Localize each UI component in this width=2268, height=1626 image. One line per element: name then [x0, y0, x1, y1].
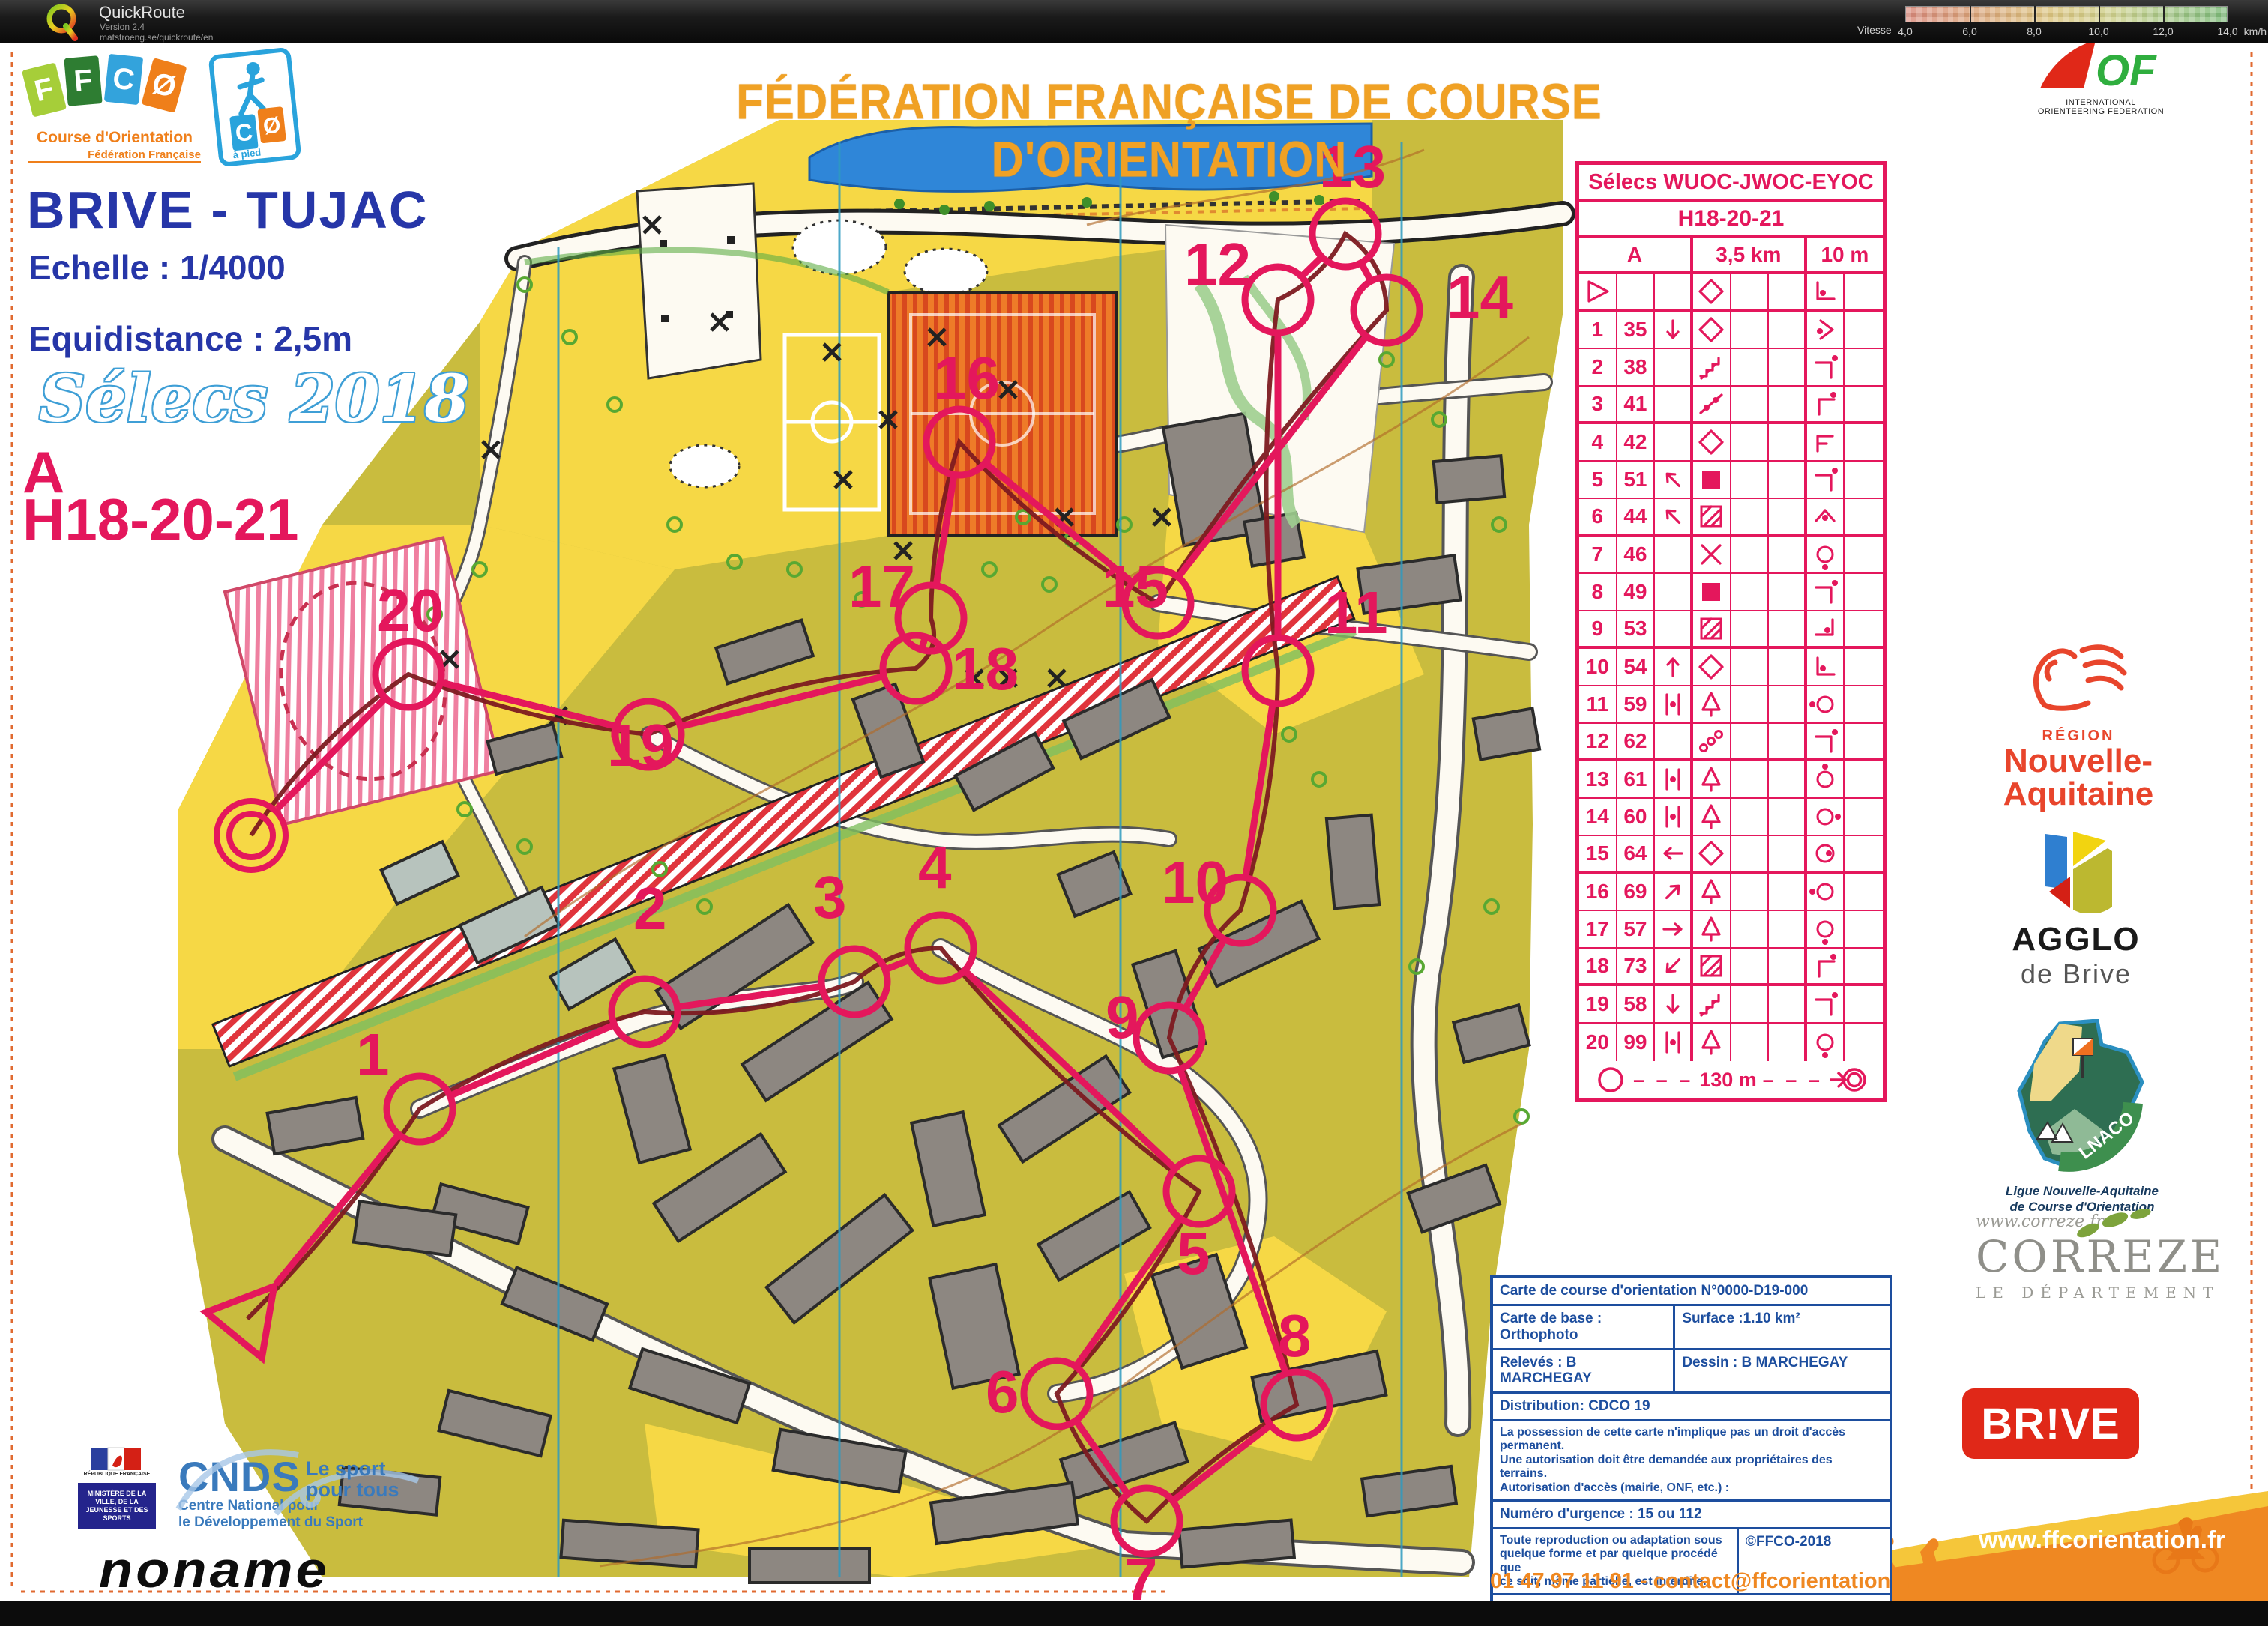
sheet-cell-c6: [1769, 799, 1807, 836]
sheet-cell-c8: [1845, 911, 1883, 949]
control-number-14: 14: [1447, 264, 1513, 330]
ffco-tile-c: C: [104, 54, 143, 105]
svg-text:à pied: à pied: [232, 147, 262, 161]
sheet-cell-c8: [1845, 387, 1883, 424]
sheet-cell-c1: 2: [1579, 349, 1617, 387]
sheet-cell-c1: 11: [1579, 686, 1617, 724]
sheet-cell-c1: 6: [1579, 499, 1617, 537]
sheet-row-10: 1054: [1579, 649, 1883, 686]
info-survey: Relevés : B MARCHEGAY: [1493, 1350, 1675, 1392]
course-category: H18-20-21: [22, 486, 299, 554]
sheet-cell-c3: [1655, 349, 1693, 387]
sheet-cell-c3: [1655, 462, 1693, 499]
sheet-cell-c2: 53: [1617, 611, 1656, 649]
ffco-site: www.ffcorientation.fr: [1979, 1526, 2225, 1554]
window-titlebar: QuickRoute Version 2.4 matstroeng.se/qui…: [0, 0, 2268, 43]
co-a-pied-logo: C Ø à pied: [208, 47, 301, 168]
cnds-tag2: pour tous: [306, 1479, 426, 1500]
agglo-line1: AGGLO: [1994, 921, 2159, 958]
info-base-row: Carte de base : Orthophoto Surface :1.10…: [1493, 1306, 1890, 1350]
sheet-cell-c5: [1731, 424, 1770, 462]
sheet-cell-c6: [1769, 312, 1807, 349]
sheet-cell-c5: [1731, 649, 1770, 686]
sheet-cell-c2: 49: [1617, 574, 1656, 611]
control-number-4: 4: [918, 834, 952, 901]
speed-tick-14,0: 14,0: [2217, 25, 2237, 37]
leaves-icon: [2066, 1208, 2156, 1241]
sheet-cell-c1: [1579, 274, 1617, 312]
sheet-cell-c8: [1845, 874, 1883, 911]
sheet-cell-c1: 19: [1579, 986, 1617, 1024]
sheet-row-7: 746: [1579, 537, 1883, 574]
sheet-cell-c8: [1845, 649, 1883, 686]
control-number-17: 17: [848, 553, 915, 620]
control-description-sheet: Sélecs WUOC-JWOC-EYOC H18-20-21 A 3,5 km…: [1575, 161, 1887, 1102]
sheet-cell-c8: [1845, 499, 1883, 537]
sheet-cell-c1: 17: [1579, 911, 1617, 949]
control-number-8: 8: [1278, 1302, 1312, 1369]
info-distribution: Distribution: CDCO 19: [1493, 1394, 1890, 1421]
sheet-row-2: 238: [1579, 349, 1883, 387]
sheet-cell-c1: 3: [1579, 387, 1617, 424]
sheet-cell-c2: 64: [1617, 836, 1656, 874]
speed-legend-label: Vitesse: [1857, 24, 1892, 36]
sheet-cell-c6: [1769, 836, 1807, 874]
app-version: Version 2.4: [100, 22, 145, 32]
region-nouvelle-aquitaine-logo: RÉGION Nouvelle- Aquitaine: [1985, 634, 2172, 811]
info-emergency: Numéro d'urgence : 15 ou 112: [1493, 1502, 1890, 1529]
sheet-cell-c8: [1845, 537, 1883, 574]
info-title: Carte de course d'orientation N°0000-D19…: [1493, 1278, 1890, 1306]
sheet-cell-c6: [1769, 424, 1807, 462]
sheet-cell-c3: [1655, 761, 1693, 799]
sheet-cell-c2: [1617, 274, 1656, 312]
sheet-cell-c7: [1807, 911, 1845, 949]
ffco-caption-2: Fédération Française: [28, 148, 201, 163]
sheet-cell-c6: [1769, 986, 1807, 1024]
sheet-cell-c4: [1693, 1024, 1731, 1061]
sheet-cell-c2: 44: [1617, 499, 1656, 537]
sheet-cell-c8: [1845, 349, 1883, 387]
ministry-logo: RÉPUBLIQUE FRANÇAISE MINISTÈRE DE LA VIL…: [78, 1446, 156, 1529]
control-number-12: 12: [1184, 231, 1251, 297]
finish-scale-row: – – – 130 m – – –: [1579, 1061, 1883, 1098]
sheet-cell-c1: 7: [1579, 537, 1617, 574]
sheet-cell-c2: 41: [1617, 387, 1656, 424]
sheet-cell-c6: [1769, 349, 1807, 387]
sheet-cell-c7: [1807, 799, 1845, 836]
sheet-rows: 1352383414425516447468499531054115912621…: [1579, 274, 1883, 1061]
speed-tick-10,0: 10,0: [2088, 25, 2108, 37]
sheet-row-13: 1361: [1579, 761, 1883, 799]
sheet-cell-c2: 57: [1617, 911, 1656, 949]
sheet-cell-c4: [1693, 911, 1731, 949]
sheet-cell-c7: [1807, 874, 1845, 911]
cnds-tag1: Le sport: [306, 1458, 426, 1479]
control-number-16: 16: [933, 345, 1000, 411]
runner-icon: C Ø à pied: [213, 52, 297, 162]
orienteering-map: 1234567891011121314151617181920: [0, 0, 2268, 1626]
sheet-cell-c3: [1655, 424, 1693, 462]
sheet-cell-c6: [1769, 1024, 1807, 1061]
sheet-cell-c2: 69: [1617, 874, 1656, 911]
sheet-cell-c5: [1731, 874, 1770, 911]
info-access-3: Autorisation d'accès (mairie, ONF, etc.)…: [1500, 1481, 1883, 1495]
sheet-cell-c2: 61: [1617, 761, 1656, 799]
sheet-cell-c8: [1845, 799, 1883, 836]
sheet-cell-c7: [1807, 312, 1845, 349]
control-number-20: 20: [377, 577, 444, 644]
control-number-2: 2: [633, 875, 667, 942]
app-url: matstroeng.se/quickroute/en: [100, 32, 213, 43]
sheet-cell-c3: [1655, 836, 1693, 874]
sheet-cell-c4: [1693, 874, 1731, 911]
sheet-cell-c5: [1731, 312, 1770, 349]
sheet-cell-c2: 46: [1617, 537, 1656, 574]
sheet-cell-c7: [1807, 761, 1845, 799]
finish-circles-icon: [1829, 1063, 1868, 1096]
sheet-cell-c4: [1693, 799, 1731, 836]
sheet-cell-c3: [1655, 799, 1693, 836]
sheet-cell-c4: [1693, 686, 1731, 724]
ffco-caption-1: Course d'Orientation: [28, 129, 201, 147]
sheet-cell-c6: [1769, 537, 1807, 574]
event-name: Sélecs 2018: [39, 361, 469, 437]
sheet-cell-c6: [1769, 387, 1807, 424]
agglo-icon: [2040, 830, 2112, 913]
sheet-cell-c5: [1731, 537, 1770, 574]
sheet-cell-c8: [1845, 274, 1883, 312]
info-survey-row: Relevés : B MARCHEGAY Dessin : B MARCHEG…: [1493, 1350, 1890, 1394]
sheet-row-start: [1579, 274, 1883, 312]
svg-text:C: C: [234, 118, 254, 147]
sports-pitch: [888, 292, 1117, 536]
sheet-cell-c6: [1769, 574, 1807, 611]
sheet-cell-c4: [1693, 312, 1731, 349]
sheet-cell-c3: [1655, 949, 1693, 986]
control-number-19: 19: [607, 712, 674, 779]
sheet-cell-c3: [1655, 312, 1693, 349]
sheet-cell-c6: [1769, 274, 1807, 312]
iof-swoosh-icon: OF: [2037, 39, 2165, 93]
sheet-cell-c6: [1769, 686, 1807, 724]
sheet-row-19: 1958: [1579, 986, 1883, 1024]
ffco-contact-line: 01 47 97 11 91 - contact@ffcorientation.…: [1490, 1569, 1912, 1594]
sheet-row-3: 341: [1579, 387, 1883, 424]
speed-unit: km/h: [2244, 25, 2267, 37]
sheet-cell-c2: 73: [1617, 949, 1656, 986]
sheet-cell-c7: [1807, 574, 1845, 611]
sheet-cell-c3: [1655, 1024, 1693, 1061]
sheet-cell-c6: [1769, 611, 1807, 649]
sheet-cell-c6: [1769, 724, 1807, 761]
map-equidistance: Equidistance : 2,5m: [28, 318, 352, 359]
sheet-cell-c4: [1693, 274, 1731, 312]
ffco-tile-o: Ø: [142, 58, 187, 113]
sheet-cell-c8: [1845, 986, 1883, 1024]
speed-tick-8,0: 8,0: [2027, 25, 2041, 37]
sheet-row-20: 2099: [1579, 1024, 1883, 1061]
sheet-cell-c6: [1769, 462, 1807, 499]
sheet-cell-c4: [1693, 349, 1731, 387]
lnaco-line1: Ligue Nouvelle-Aquitaine: [1985, 1183, 2180, 1199]
speed-tick-12,0: 12,0: [2153, 25, 2173, 37]
window-bottom-bar: [0, 1601, 2268, 1626]
sheet-cell-c4: [1693, 724, 1731, 761]
sheet-cell-c5: [1731, 462, 1770, 499]
sheet-climb: 10 m: [1807, 238, 1883, 271]
sheet-cell-c5: [1731, 911, 1770, 949]
speed-gradient-bar: [1905, 6, 2228, 22]
sheet-cell-c6: [1769, 761, 1807, 799]
info-base: Carte de base : Orthophoto: [1493, 1306, 1675, 1348]
sheet-cell-c1: 4: [1579, 424, 1617, 462]
sheet-cell-c6: [1769, 949, 1807, 986]
sheet-cell-c2: 99: [1617, 1024, 1656, 1061]
svg-text:Ø: Ø: [262, 113, 282, 139]
sheet-cell-c7: [1807, 611, 1845, 649]
noname-logo: noname: [99, 1540, 330, 1598]
app-title: QuickRoute: [99, 3, 185, 22]
sheet-cell-c1: 8: [1579, 574, 1617, 611]
sheet-cell-c2: 38: [1617, 349, 1656, 387]
info-surface: Surface :1.10 km²: [1675, 1306, 1806, 1348]
sheet-cell-c7: [1807, 349, 1845, 387]
sheet-cell-c8: [1845, 574, 1883, 611]
sheet-cell-c8: [1845, 724, 1883, 761]
sheet-cell-c4: [1693, 949, 1731, 986]
sheet-cell-c3: [1655, 649, 1693, 686]
speed-legend: Vitesse 4,06,08,010,012,014,0 km/h: [1905, 4, 2228, 39]
sheet-cell-c3: [1655, 874, 1693, 911]
map-title: BRIVE - TUJAC: [27, 180, 428, 240]
sheet-cell-c3: [1655, 724, 1693, 761]
sheet-cell-c3: [1655, 986, 1693, 1024]
region-line1: Nouvelle-: [1985, 745, 2172, 778]
sheet-cell-c3: [1655, 387, 1693, 424]
sheet-cell-c6: [1769, 499, 1807, 537]
sheet-cell-c5: [1731, 611, 1770, 649]
map-scale: Echelle : 1/4000: [28, 247, 286, 288]
sheet-cell-c7: [1807, 949, 1845, 986]
sheet-cell-c4: [1693, 574, 1731, 611]
sheet-row-9: 953: [1579, 611, 1883, 649]
ffco-tile-f2: F: [64, 55, 102, 106]
sheet-cell-c8: [1845, 462, 1883, 499]
sheet-cell-c2: 42: [1617, 424, 1656, 462]
sheet-cell-c5: [1731, 949, 1770, 986]
control-number-6: 6: [986, 1358, 1019, 1425]
sheet-category: H18-20-21: [1579, 202, 1883, 238]
sheet-cell-c8: [1845, 836, 1883, 874]
sheet-cell-c2: 54: [1617, 649, 1656, 686]
sheet-cell-c3: [1655, 499, 1693, 537]
info-repro-1: Toute reproduction ou adaptation sous: [1500, 1534, 1730, 1547]
sheet-cell-c5: [1731, 274, 1770, 312]
sheet-cell-c4: [1693, 424, 1731, 462]
sheet-cell-c2: 59: [1617, 686, 1656, 724]
sheet-cell-c8: [1845, 312, 1883, 349]
ffco-logo: F F C Ø Course d'Orientation Fédération …: [27, 52, 199, 176]
sheet-cell-c7: [1807, 387, 1845, 424]
sheet-cell-c3: [1655, 911, 1693, 949]
ministry-box: MINISTÈRE DE LA VILLE, DE LA JEUNESSE ET…: [78, 1483, 156, 1529]
sheet-cell-c7: [1807, 649, 1845, 686]
sheet-cell-c7: [1807, 986, 1845, 1024]
control-number-9: 9: [1106, 984, 1139, 1051]
sheet-row-6: 644: [1579, 499, 1883, 537]
french-flag-icon: RÉPUBLIQUE FRANÇAISE: [78, 1446, 156, 1476]
sheet-cell-c1: 14: [1579, 799, 1617, 836]
sheet-cell-c1: 18: [1579, 949, 1617, 986]
sheet-cell-c4: [1693, 986, 1731, 1024]
sheet-cell-c4: [1693, 611, 1731, 649]
info-access-1: La possession de cette carte n'implique …: [1500, 1426, 1883, 1454]
sheet-cell-c7: [1807, 462, 1845, 499]
sheet-cell-c5: [1731, 387, 1770, 424]
correze-departement: LE DÉPARTEMENT: [1976, 1284, 2231, 1302]
sheet-cell-c7: [1807, 424, 1845, 462]
sheet-row-5: 551: [1579, 462, 1883, 499]
sheet-cell-c5: [1731, 1024, 1770, 1061]
sheet-cell-c4: [1693, 761, 1731, 799]
sheet-cell-c1: 12: [1579, 724, 1617, 761]
sheet-cell-c2: 60: [1617, 799, 1656, 836]
speed-tick-4,0: 4,0: [1898, 25, 1912, 37]
sheet-row-4: 442: [1579, 424, 1883, 462]
sheet-cell-c8: [1845, 761, 1883, 799]
sheet-cell-c3: [1655, 574, 1693, 611]
sheet-cell-c4: [1693, 499, 1731, 537]
sheet-cell-c6: [1769, 911, 1807, 949]
brive-logo: BR!VE: [1962, 1388, 2139, 1459]
sheet-cell-c1: 5: [1579, 462, 1617, 499]
sheet-cell-c5: [1731, 799, 1770, 836]
sheet-row-14: 1460: [1579, 799, 1883, 836]
info-access: La possession de cette carte n'implique …: [1493, 1421, 1890, 1502]
sheet-cell-c2: 51: [1617, 462, 1656, 499]
control-number-15: 15: [1102, 553, 1168, 620]
sheet-row-1: 135: [1579, 312, 1883, 349]
sheet-cell-c8: [1845, 949, 1883, 986]
sheet-cell-c6: [1769, 649, 1807, 686]
finish-distance: 130 m: [1699, 1069, 1757, 1092]
control-number-10: 10: [1162, 849, 1228, 916]
agglo-line2: de Brive: [1994, 958, 2159, 990]
sheet-cell-c5: [1731, 686, 1770, 724]
sheet-cell-c1: 9: [1579, 611, 1617, 649]
sheet-cell-c4: [1693, 462, 1731, 499]
sheet-cell-c3: [1655, 686, 1693, 724]
lnaco-badge-icon: LNACO: [2015, 1019, 2150, 1176]
sheet-cell-c7: [1807, 1024, 1845, 1061]
sheet-cell-c6: [1769, 874, 1807, 911]
sheet-cell-c2: 35: [1617, 312, 1656, 349]
sheet-row-11: 1159: [1579, 686, 1883, 724]
control-number-11: 11: [1324, 579, 1388, 646]
sheet-cell-c7: [1807, 724, 1845, 761]
sheet-row-17: 1757: [1579, 911, 1883, 949]
info-drawing: Dessin : B MARCHEGAY: [1675, 1350, 1854, 1392]
sheet-cell-c5: [1731, 761, 1770, 799]
sheet-cell-c3: [1655, 537, 1693, 574]
sheet-row-12: 1262: [1579, 724, 1883, 761]
sheet-row-16: 1669: [1579, 874, 1883, 911]
lnaco-logo: LNACO Ligue Nouvelle-Aquitaine de Course…: [1985, 1019, 2180, 1215]
sheet-cell-c2: 62: [1617, 724, 1656, 761]
sheet-row-8: 849: [1579, 574, 1883, 611]
control-number-5: 5: [1177, 1220, 1210, 1287]
sheet-cell-c7: [1807, 274, 1845, 312]
brive-label: BR!VE: [1981, 1399, 2120, 1449]
sheet-title: Sélecs WUOC-JWOC-EYOC: [1579, 165, 1883, 202]
sheet-course: A: [1579, 238, 1693, 271]
sheet-cell-c8: [1845, 611, 1883, 649]
speed-tick-6,0: 6,0: [1962, 25, 1976, 37]
cnds-logo: CNDS Le sport pour tous Centre National …: [178, 1452, 363, 1531]
sheet-cell-c4: [1693, 387, 1731, 424]
sheet-cell-c7: [1807, 836, 1845, 874]
sheet-cell-c1: 10: [1579, 649, 1617, 686]
svg-text:OF: OF: [2096, 46, 2157, 93]
sheet-cell-c1: 1: [1579, 312, 1617, 349]
lion-icon: [2022, 634, 2135, 724]
republique-label: RÉPUBLIQUE FRANÇAISE: [84, 1470, 151, 1476]
sheet-cell-c5: [1731, 724, 1770, 761]
sheet-cell-c7: [1807, 499, 1845, 537]
iof-caption: INTERNATIONAL ORIENTEERING FEDERATION: [2037, 98, 2165, 116]
iof-logo: OF INTERNATIONAL ORIENTEERING FEDERATION: [2037, 39, 2262, 116]
sheet-cell-c3: [1655, 274, 1693, 312]
info-access-2: Une autorisation doit être demandée aux …: [1500, 1454, 1883, 1481]
sheet-cell-c4: [1693, 649, 1731, 686]
sheet-cell-c1: 20: [1579, 1024, 1617, 1061]
control-number-1: 1: [356, 1021, 390, 1088]
sheet-row-15: 1564: [1579, 836, 1883, 874]
sheet-cell-c2: 58: [1617, 986, 1656, 1024]
correze-logo: www.correze.fr CORREZE LE DÉPARTEMENT: [1976, 1212, 2231, 1302]
control-number-3: 3: [813, 864, 847, 931]
sheet-cell-c4: [1693, 537, 1731, 574]
sheet-cell-c8: [1845, 686, 1883, 724]
sheet-cell-c1: 13: [1579, 761, 1617, 799]
sheet-cell-c3: [1655, 611, 1693, 649]
quickroute-window: QuickRoute Version 2.4 matstroeng.se/qui…: [0, 0, 2268, 1626]
sheet-header-row: A 3,5 km 10 m: [1579, 238, 1883, 274]
sheet-cell-c4: [1693, 836, 1731, 874]
agglo-de-brive-logo: AGGLO de Brive: [1994, 830, 2159, 990]
sheet-cell-c1: 16: [1579, 874, 1617, 911]
sheet-cell-c5: [1731, 349, 1770, 387]
sheet-cell-c8: [1845, 424, 1883, 462]
sheet-length: 3,5 km: [1693, 238, 1807, 271]
sheet-cell-c8: [1845, 1024, 1883, 1061]
start-circle-icon: [1594, 1063, 1627, 1096]
control-number-18: 18: [952, 635, 1019, 702]
sheet-row-18: 1873: [1579, 949, 1883, 986]
sheet-cell-c7: [1807, 537, 1845, 574]
sheet-cell-c5: [1731, 836, 1770, 874]
sheet-cell-c5: [1731, 986, 1770, 1024]
sheet-cell-c1: 15: [1579, 836, 1617, 874]
sheet-cell-c5: [1731, 574, 1770, 611]
sheet-cell-c5: [1731, 499, 1770, 537]
ffco-tile-f1: F: [22, 62, 67, 117]
sheet-cell-c7: [1807, 686, 1845, 724]
quickroute-logo-icon: [43, 2, 82, 41]
region-line2: Aquitaine: [1985, 778, 2172, 811]
